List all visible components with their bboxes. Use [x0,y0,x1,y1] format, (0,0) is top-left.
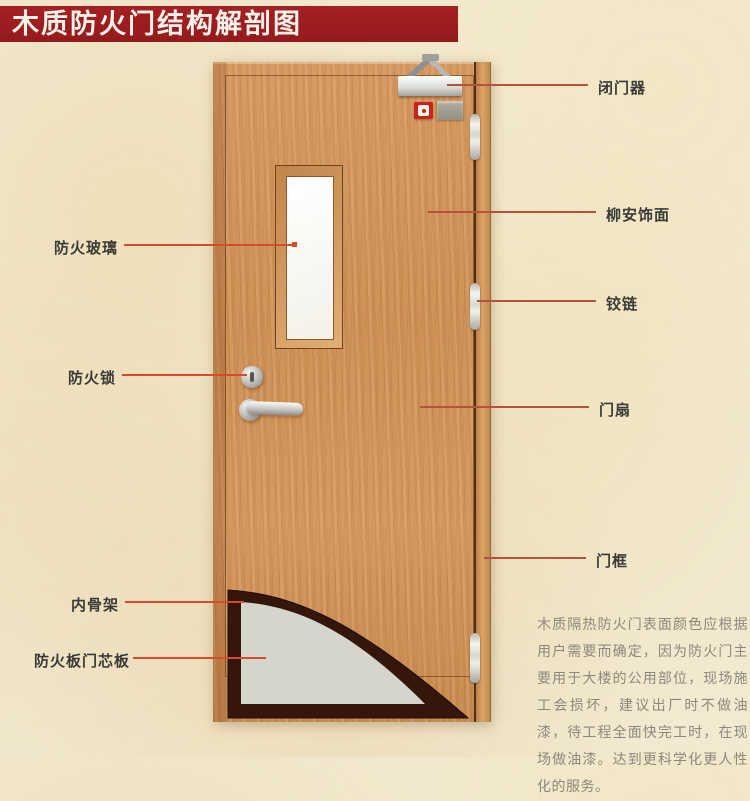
door-illustration [213,62,490,722]
callout-line-door-closer [447,84,588,86]
keyhole [250,372,254,382]
label-plate [437,101,463,120]
door-handle [246,401,303,416]
fire-board-core-graphic [241,602,425,704]
callout-line-door-frame [484,557,586,559]
callout-line-inner-skeleton [125,601,244,603]
label-fire-lock: 防火锁 [68,367,116,388]
title-banner: 木质防火门结构解剖图 [0,6,458,42]
label-door-closer: 闭门器 [598,77,646,98]
callout-line-fire-lock [122,374,247,376]
label-fire-board-core: 防火板门芯板 [34,650,130,671]
fire-lock-cylinder [241,366,263,388]
callout-line-hinge [477,300,596,302]
page-title: 木质防火门结构解剖图 [0,6,458,43]
label-fire-glass: 防火玻璃 [54,237,118,258]
label-inner-skeleton: 内骨架 [71,594,119,615]
fire-alarm-sign-dot [422,109,426,113]
fire-alarm-sign-inner [418,105,429,116]
product-description: 木质隔热防火门表面颜色应根据用户需要而确定，因为防火门主要用于大楼的公用部位，现… [537,612,748,801]
fire-glass-window-frame [276,166,342,348]
label-door-frame: 门框 [596,550,628,571]
cutaway-core-section [213,578,490,722]
callout-dot-fire-glass [292,242,297,247]
fire-alarm-sign [414,102,433,119]
label-door-leaf: 门扇 [599,399,631,420]
label-lauan-veneer: 柳安饰面 [606,204,670,225]
callout-line-fire-glass [124,244,294,246]
fire-glass-window [286,176,334,340]
hinge-middle [470,283,480,330]
callout-line-fire-board-core [133,657,266,659]
door-closer-body [398,76,462,96]
label-hinge: 铰链 [606,293,638,314]
callout-line-door-leaf [420,406,589,408]
callout-line-lauan-veneer [428,211,596,213]
hinge-top [470,114,480,160]
